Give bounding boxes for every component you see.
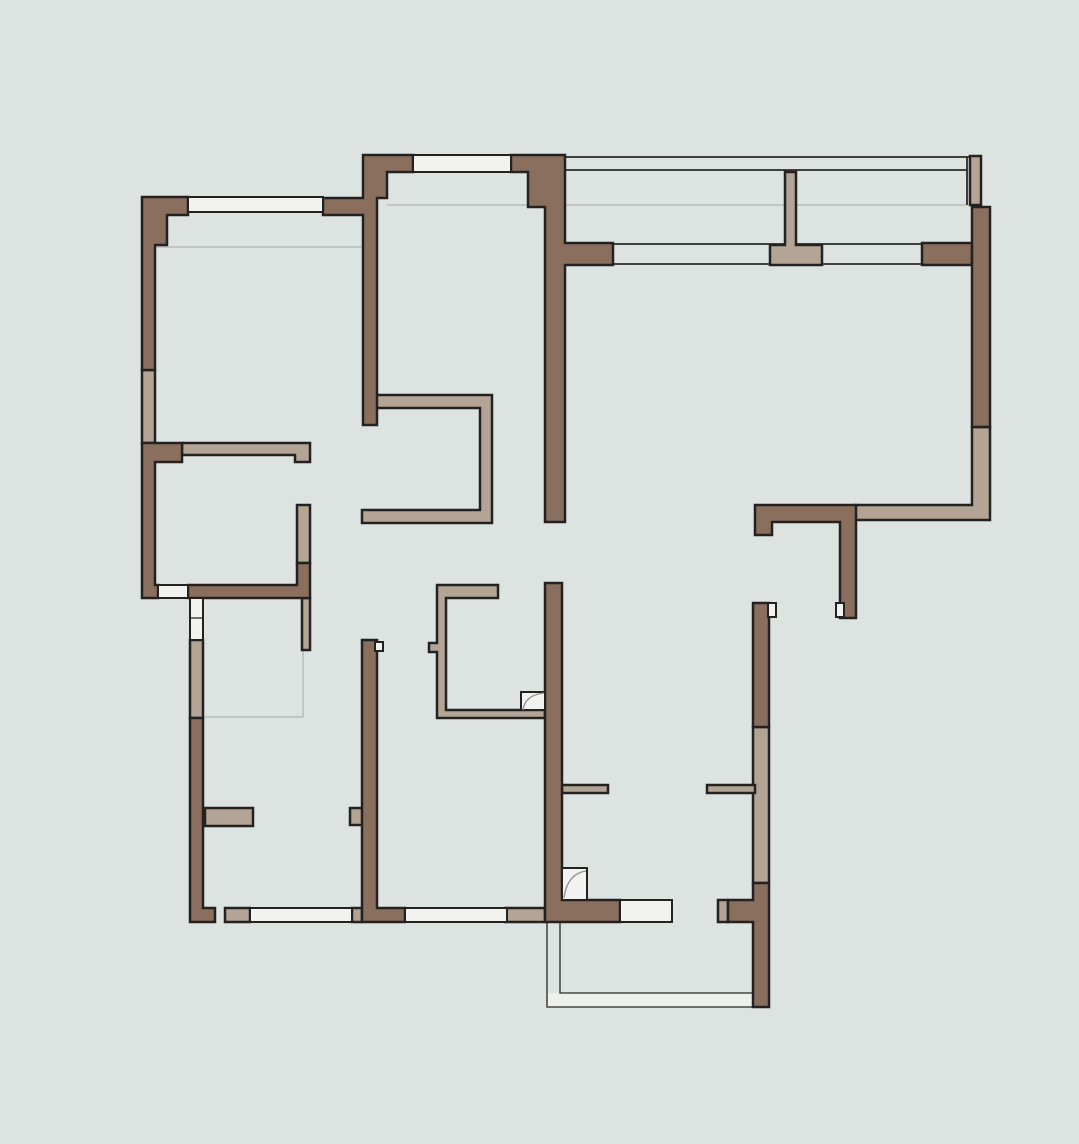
window-bedroom1 [188,197,323,212]
wall-bedroom-divider [323,155,413,425]
glazing-end-post [970,156,981,205]
wall-notch-3 [836,603,844,617]
window-bath [250,908,352,922]
wall-right-mid [753,603,769,727]
wardrobe-unit [362,395,492,523]
wall-dining-corner [755,505,856,618]
right-wall-window-panel [855,427,990,520]
floorplan-page [0,0,1079,1144]
wall-living-left [511,155,613,522]
left-wall-window-panel [142,370,155,443]
door-jamb-entry [190,598,203,640]
door-jamb-stub-right [707,785,755,793]
wall-bath-divider [362,640,405,922]
window-bedroom3 [405,908,507,922]
wall-hall-horizontal [188,563,310,598]
window-bedroom2 [413,155,511,172]
balcony-bottom-band [548,993,770,1007]
sill-block-right [505,908,545,922]
wall-left-lower [142,443,182,598]
wall-window-stub-right [922,243,972,265]
wall-right-upper [972,207,990,427]
hall-wall-beige [182,443,310,462]
door-leaf-kitchen [521,692,545,710]
closet-wall-upper [297,505,310,563]
entry-wall-panel [190,640,203,718]
bath-fixture-bar [205,808,253,826]
sill-block-left [225,908,250,922]
sill-block-mid [352,908,362,922]
door-opening-hall [158,585,188,598]
wall-notch-1 [375,642,383,651]
sill-block-door [718,900,728,922]
wall-bottom-right [728,883,769,1007]
wall-top-left-corner [142,197,188,370]
balcony-bottom-inner [560,922,753,993]
floorplan-drawing [0,0,1079,1144]
right-lower-wall-panel [753,727,769,883]
door-leaf-balcony [562,868,587,900]
door-jamb-stub-left [562,785,608,793]
door-opening-balcony [620,900,672,922]
wall-notch-2 [768,603,776,617]
closet-wall-lower [302,598,310,650]
balcony-column [770,172,822,265]
